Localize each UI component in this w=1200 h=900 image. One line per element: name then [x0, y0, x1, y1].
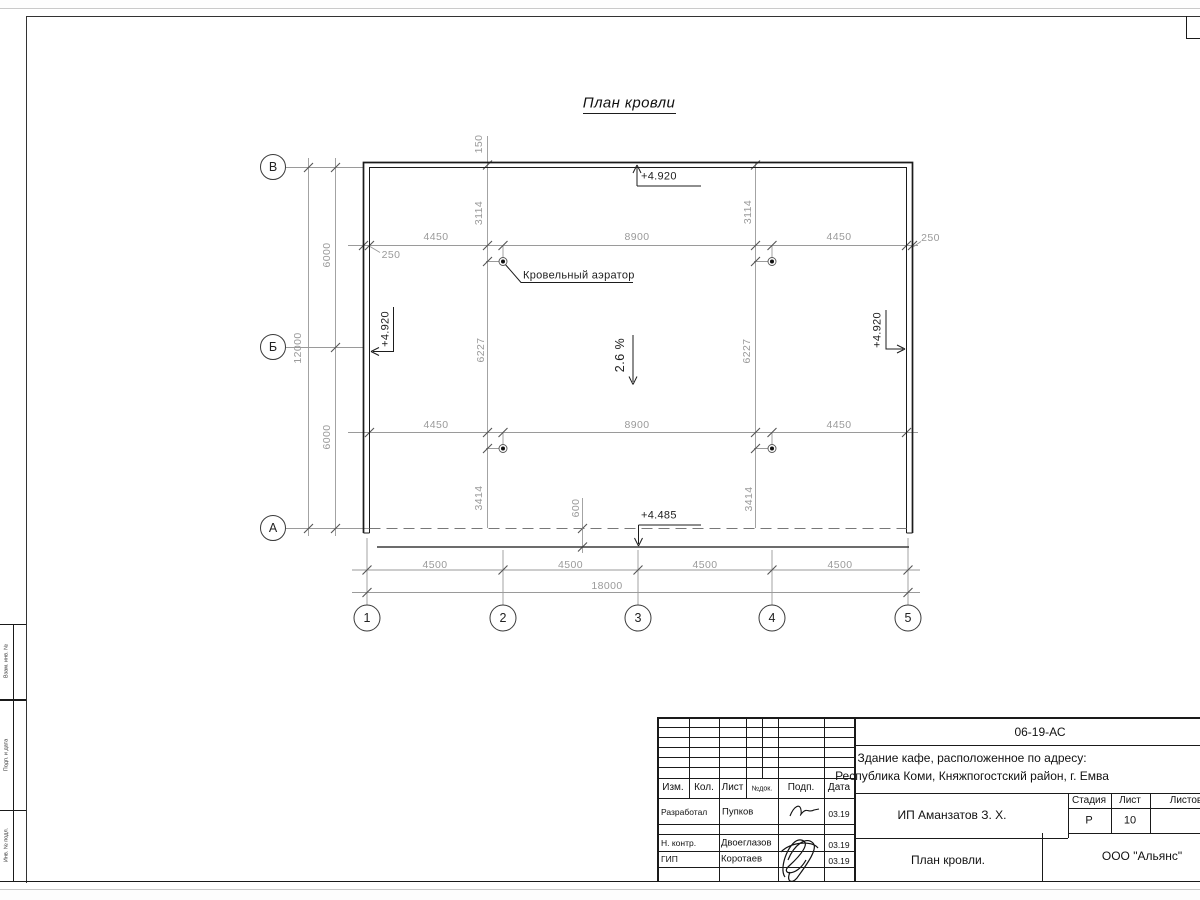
- row-role: Н. контр.: [661, 839, 696, 848]
- dim-label: 4500: [693, 560, 718, 571]
- title-block-line: [855, 793, 1200, 794]
- title-block-line: [1068, 833, 1200, 834]
- col-header-kol: Кол.: [694, 783, 714, 793]
- signature-razrabotal: [790, 806, 819, 816]
- title-block-line: [762, 718, 763, 778]
- row-date: 03.19: [828, 809, 849, 818]
- signatures: [781, 806, 819, 881]
- title-block-line: [1042, 833, 1043, 882]
- row-name: Коротаев: [721, 854, 762, 864]
- title-block-line: [746, 718, 747, 798]
- title-block-line: [1068, 793, 1069, 838]
- col-header-list: Лист: [722, 783, 744, 793]
- title-block-line: [824, 718, 825, 882]
- roof-outline: [364, 163, 913, 548]
- sheets-header: Листов: [1170, 796, 1200, 806]
- title-block-line: [658, 757, 855, 758]
- row-role: ГИП: [661, 855, 678, 864]
- title-block-line: [1111, 793, 1112, 833]
- signature-gip: [781, 840, 818, 881]
- title-block-line: [855, 838, 1068, 839]
- dim-label: 600: [570, 498, 581, 517]
- drawing-sheet: Взам. инв. № Подп. и дата Инв. № подл.: [0, 0, 1200, 900]
- aerator-dot: [499, 258, 507, 266]
- title-block-line: [658, 851, 855, 852]
- axis-col-4: 4: [769, 612, 776, 625]
- slope-arrow: [629, 335, 637, 385]
- axis-row-a: А: [269, 522, 277, 535]
- col-header-izm: Изм.: [662, 783, 683, 793]
- dim-label: 6227: [742, 339, 753, 364]
- title-block-line: [658, 824, 855, 825]
- dim-label: 6227: [476, 338, 487, 363]
- company-name: ООО "Альянс": [1102, 850, 1182, 862]
- dimension-lines: [286, 136, 921, 605]
- title-block-line: [658, 798, 855, 799]
- client-name: ИП Аманзатов З. Х.: [897, 809, 1006, 821]
- dim-label: 4500: [828, 560, 853, 571]
- plan-linework: [0, 0, 1200, 900]
- dim-label: 4450: [827, 419, 852, 430]
- dim-label: 3114: [743, 199, 754, 223]
- row-role: Разработал: [661, 808, 707, 817]
- dim-label: 250: [382, 249, 401, 260]
- annotation-leaders: [371, 114, 905, 547]
- row-name: Пупков: [722, 807, 753, 817]
- title-block-line: [658, 727, 855, 728]
- axis-bubbles: [261, 155, 922, 632]
- sheet-number: 10: [1124, 815, 1136, 826]
- aerator-dot: [499, 445, 507, 453]
- sheet-header: Лист: [1119, 796, 1141, 806]
- dim-label: 3414: [474, 485, 485, 510]
- sheet-title: План кровли.: [911, 854, 985, 866]
- dim-label: 250: [921, 232, 940, 243]
- elevation-arrow-right: [886, 310, 905, 353]
- title-block-border: [657, 717, 1200, 719]
- dim-label: 6000: [322, 243, 333, 268]
- title-block-line: [855, 745, 1200, 746]
- title-block-line: [658, 867, 855, 868]
- col-header-data: Дата: [828, 783, 850, 793]
- stage-value: Р: [1085, 815, 1092, 826]
- dim-label: 6000: [322, 425, 333, 450]
- stage-header: Стадия: [1072, 796, 1106, 806]
- row-name: Двоеглазов: [721, 838, 772, 848]
- axis-col-1: 1: [364, 612, 371, 625]
- dim-label: 4450: [827, 231, 852, 242]
- project-name-line2: Республика Коми, Княжпогостский район, г…: [835, 770, 1109, 782]
- axis-row-v: В: [269, 161, 277, 174]
- title-block-line: [719, 718, 720, 882]
- elevation-label-top: +4.920: [641, 171, 677, 182]
- axis-col-5: 5: [905, 612, 912, 625]
- title-block-line: [689, 718, 690, 798]
- doc-code: 06-19-АС: [1014, 726, 1065, 738]
- axis-col-3: 3: [635, 612, 642, 625]
- slope-label: 2.6 %: [614, 338, 627, 372]
- title-block-line: [658, 834, 855, 835]
- title-block-line: [658, 767, 855, 768]
- dim-label: 4500: [423, 560, 448, 571]
- dim-label: 4450: [424, 419, 449, 430]
- elevation-label-right: +4.920: [872, 312, 883, 348]
- dim-label: 8900: [625, 231, 650, 242]
- title-block-border: [657, 717, 659, 882]
- row-date: 03.19: [828, 857, 849, 866]
- dim-label: 4450: [424, 231, 449, 242]
- title-block-line: [658, 778, 855, 779]
- title-block-line: [1150, 793, 1151, 833]
- aerator-label: Кровельный аэратор: [523, 270, 635, 281]
- dim-label: 12000: [293, 332, 304, 363]
- axis-col-2: 2: [500, 612, 507, 625]
- dim-label: 3414: [744, 487, 755, 512]
- elevation-label-left: +4.920: [381, 311, 392, 347]
- aerator-dot: [768, 445, 776, 453]
- dim-label: 18000: [591, 581, 622, 592]
- title-block-line: [778, 718, 779, 882]
- title-block-line: [854, 718, 856, 882]
- title-block-line: [658, 737, 855, 738]
- drawing-title: План кровли: [583, 96, 675, 111]
- col-header-doc: №док.: [752, 785, 773, 792]
- dim-label: 150: [474, 135, 485, 154]
- dim-label: 8900: [625, 419, 650, 430]
- axis-row-b: Б: [269, 341, 277, 354]
- dim-label: 4500: [558, 560, 583, 571]
- project-name-line1: Здание кафе, расположенное по адресу:: [857, 752, 1086, 764]
- title-block-line: [658, 747, 855, 748]
- aerator-dot: [768, 258, 776, 266]
- title-block-line: [1068, 808, 1200, 809]
- dim-label: 3114: [474, 200, 485, 224]
- dimension-ticks: [304, 161, 917, 598]
- elevation-label-eaves: +4.485: [641, 511, 677, 522]
- col-header-podp: Подп.: [788, 783, 815, 793]
- row-date: 03.19: [828, 840, 849, 849]
